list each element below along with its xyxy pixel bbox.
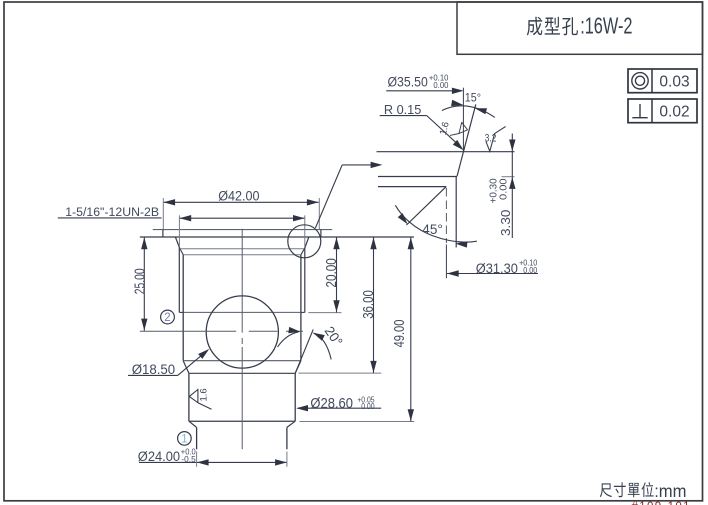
svg-text:R 0.15: R 0.15 [384,102,421,117]
svg-text:Ø31.30: Ø31.30 [476,261,518,277]
svg-text:3.2: 3.2 [485,132,497,144]
svg-text:15°: 15° [465,91,481,104]
svg-text:1.6: 1.6 [199,388,210,401]
svg-text:Ø42.00: Ø42.00 [218,188,259,204]
svg-text:36.00: 36.00 [361,290,377,319]
svg-text:Ø35.50: Ø35.50 [388,75,428,91]
svg-text:20.00: 20.00 [324,258,340,287]
svg-text:0.00: 0.00 [433,80,448,90]
svg-text:0.00: 0.00 [361,401,375,411]
svg-text:0.00: 0.00 [523,265,537,275]
svg-text:Ø24.00: Ø24.00 [138,449,180,465]
svg-text:3.30: 3.30 [499,210,513,236]
svg-text:1: 1 [181,434,187,446]
svg-text::16W-2: :16W-2 [580,13,632,39]
svg-text:#109-101: #109-101 [632,501,690,505]
svg-text:0.03: 0.03 [659,73,689,90]
svg-text:25.00: 25.00 [133,268,149,294]
svg-text:45°: 45° [422,222,443,238]
svg-text::mm: :mm [654,481,686,501]
svg-text:49.00: 49.00 [392,320,408,348]
svg-text:-0.5: -0.5 [181,454,196,464]
svg-text:1-5/16"-12UN-2B: 1-5/16"-12UN-2B [65,205,159,219]
svg-text:2: 2 [164,312,170,324]
svg-text:+0.30: +0.30 [488,178,499,203]
svg-text:Ø28.60: Ø28.60 [310,396,353,412]
svg-text:0.00: 0.00 [499,178,510,200]
svg-text:0.02: 0.02 [659,103,689,120]
